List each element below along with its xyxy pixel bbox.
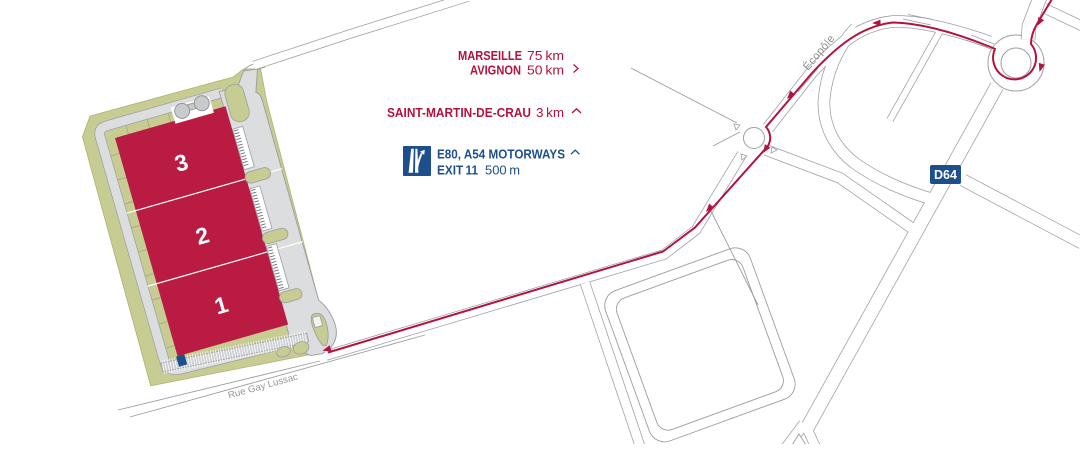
- svg-text:75 km: 75 km: [527, 49, 564, 63]
- svg-text:D64: D64: [934, 168, 957, 182]
- svg-text:SAINT-MARTIN-DE-CRAU: SAINT-MARTIN-DE-CRAU: [387, 106, 531, 120]
- svg-text:MARSEILLE: MARSEILLE: [458, 49, 522, 63]
- svg-text:AVIGNON: AVIGNON: [470, 64, 521, 78]
- svg-text:EXIT 11: EXIT 11: [437, 164, 478, 178]
- svg-text:3 km: 3 km: [536, 106, 564, 120]
- svg-text:50 km: 50 km: [527, 64, 564, 78]
- svg-text:500 m: 500 m: [485, 164, 520, 178]
- svg-text:E80, A54 MOTORWAYS: E80, A54 MOTORWAYS: [437, 148, 565, 162]
